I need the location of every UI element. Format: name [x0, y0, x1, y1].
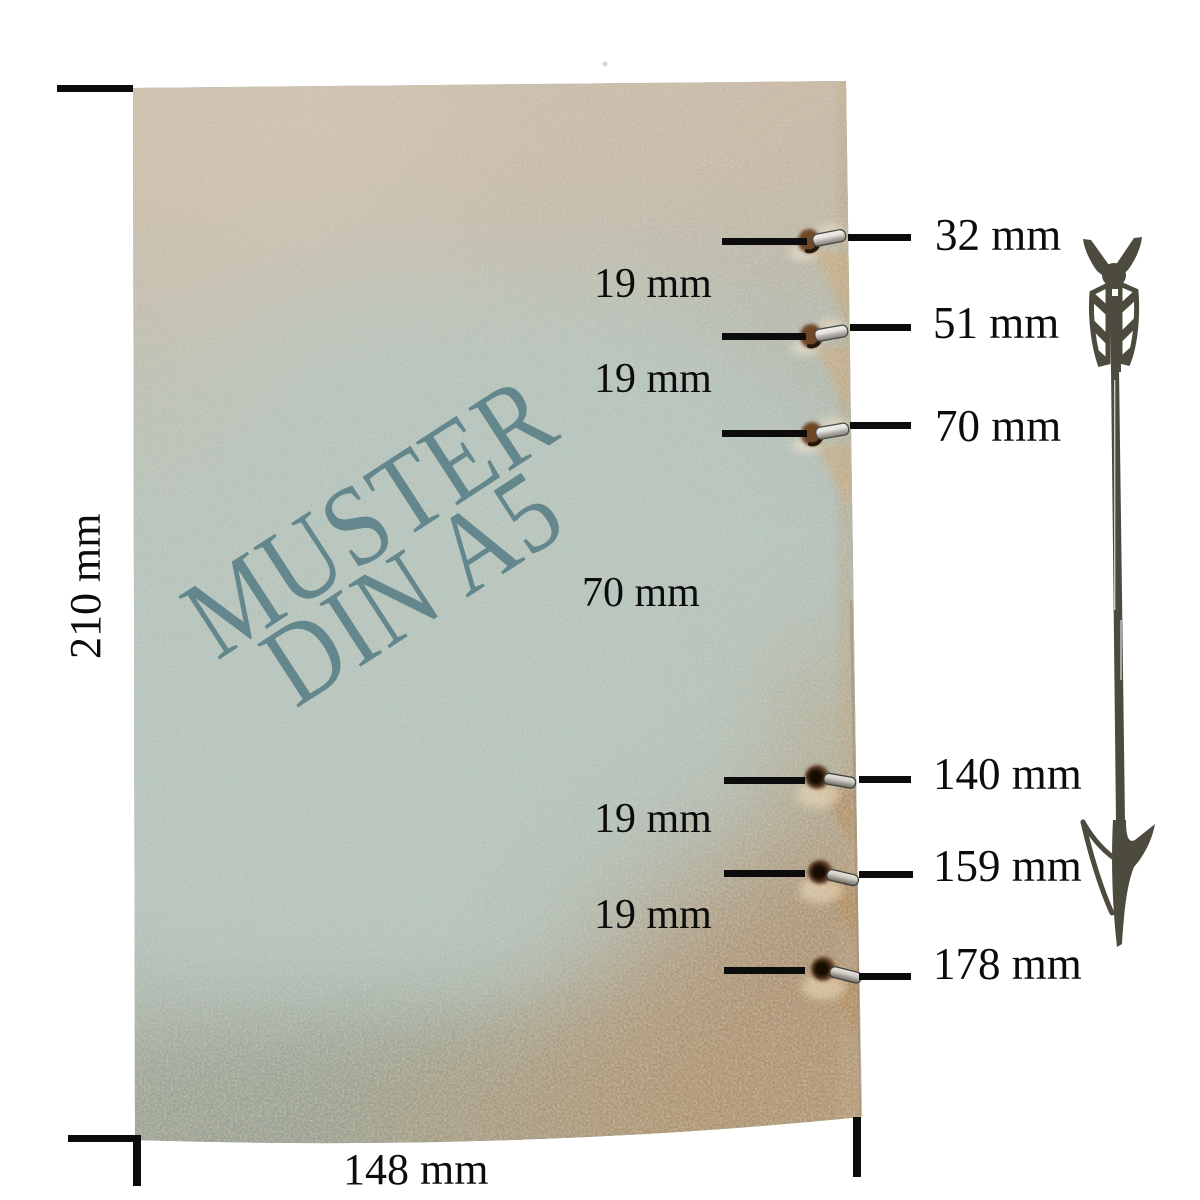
svg-text:140 mm: 140 mm — [933, 749, 1082, 799]
svg-text:70 mm: 70 mm — [935, 401, 1061, 451]
svg-text:19 mm: 19 mm — [594, 796, 712, 842]
svg-text:159 mm: 159 mm — [933, 841, 1082, 891]
svg-text:19 mm: 19 mm — [594, 356, 712, 402]
svg-text:178 mm: 178 mm — [933, 939, 1082, 989]
svg-text:70 mm: 70 mm — [582, 570, 700, 616]
svg-text:19 mm: 19 mm — [594, 892, 712, 938]
svg-text:210 mm: 210 mm — [61, 514, 110, 659]
svg-text:19 mm: 19 mm — [594, 261, 712, 307]
svg-text:148 mm: 148 mm — [343, 1145, 488, 1194]
svg-text:32 mm: 32 mm — [935, 210, 1061, 260]
svg-text:51 mm: 51 mm — [933, 298, 1059, 348]
